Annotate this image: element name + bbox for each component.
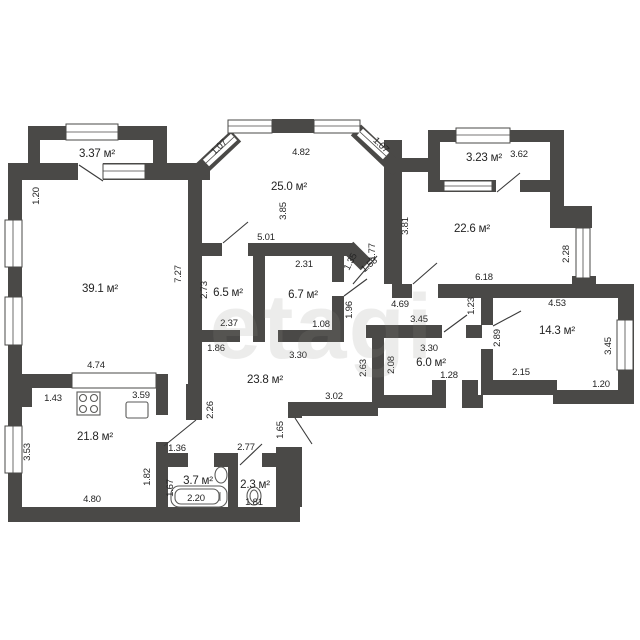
dim-exit-door: 1.65 [275, 421, 286, 439]
window [66, 124, 118, 140]
dim-room3-step: 1.20 [592, 379, 610, 390]
dim-room3-right: 3.45 [603, 337, 614, 355]
wall [276, 447, 302, 507]
wall [384, 158, 440, 172]
dim-kitchen-door: 1.36 [168, 443, 186, 454]
dim-wall-177: 1.77 [367, 243, 378, 261]
dim-walkin1-left: 2.73 [199, 281, 210, 299]
dim-kitchen-left: 3.53 [22, 443, 33, 461]
dim-room2-left: 3.81 [400, 217, 411, 235]
dim-kitchen-bottom: 4.80 [83, 494, 101, 505]
dim-left-top: 1.20 [31, 187, 42, 205]
wall [156, 453, 188, 467]
wall [214, 453, 238, 467]
floor-plan-page: 39.1 м² 21.8 м² 23.8 м² 25.0 м² 22.6 м² … [0, 0, 640, 640]
pass-through [72, 373, 156, 388]
floor-plan: 39.1 м² 21.8 м² 23.8 м² 25.0 м² 22.6 м² … [0, 0, 640, 640]
wall [156, 374, 168, 415]
room-label-room2: 22.6 м² [454, 223, 490, 235]
wall [550, 206, 592, 228]
window [5, 426, 22, 473]
door-swing [223, 222, 248, 243]
opening [446, 378, 462, 410]
wall [228, 467, 238, 507]
window [314, 120, 360, 133]
wall [272, 119, 314, 133]
room-label-living: 39.1 м² [82, 283, 118, 295]
dim-room2-bottom: 6.18 [475, 272, 493, 283]
sink-icon [215, 467, 227, 483]
wall [481, 284, 493, 325]
dim-wc-inner: 1.81 [245, 497, 263, 508]
dim-room3-top: 4.53 [548, 298, 566, 309]
room-label-bathroom: 3.7 м² [183, 475, 213, 487]
dim-room2-right: 2.28 [561, 245, 572, 263]
dim-living-right: 7.27 [173, 265, 184, 283]
dim-bath-inner: 1.67 [165, 479, 176, 497]
dim-room3-bottom: 2.15 [512, 367, 530, 378]
room-label-balcony-right: 3.23 м² [466, 152, 502, 164]
wall [372, 395, 483, 408]
wall [188, 163, 202, 388]
opening [288, 418, 302, 447]
dim-bathtub: 2.20 [187, 493, 205, 504]
dim-room1-depth: 3.85 [278, 202, 289, 220]
wall [28, 126, 40, 165]
dim-lobby-wall: 2.26 [205, 401, 216, 419]
wall [153, 126, 167, 168]
room-label-room3: 14.3 м² [539, 325, 575, 337]
window [228, 120, 272, 133]
window [456, 128, 510, 143]
dim-wall-123: 1.23 [466, 297, 477, 315]
opening [222, 243, 248, 256]
window [444, 181, 492, 191]
dim-living-bottom: 4.74 [87, 360, 105, 371]
window [576, 228, 590, 278]
window [103, 164, 145, 179]
wall [288, 402, 378, 416]
dim-bath-outer: 1.82 [142, 468, 153, 486]
room-label-balcony-left: 3.37 м² [79, 148, 115, 160]
dim-balcony-right-len: 3.62 [510, 149, 528, 160]
window [617, 320, 633, 370]
wall [550, 130, 564, 218]
dim-room1-bottom: 5.01 [257, 232, 275, 243]
stove-icon [77, 392, 100, 415]
dim-wc-top: 2.77 [237, 442, 255, 453]
dim-entry-door: 1.28 [440, 370, 458, 381]
dim-walkin2-top: 2.31 [295, 259, 313, 270]
dim-room3-left: 2.89 [492, 329, 503, 347]
window [5, 220, 22, 267]
wall [8, 507, 300, 522]
wall [481, 380, 557, 395]
opening [78, 163, 103, 180]
door-swing [493, 311, 521, 326]
room-label-kitchen: 21.8 м² [77, 431, 113, 443]
dim-hall-bottom: 3.02 [325, 391, 343, 402]
dim-bay-top: 4.82 [292, 147, 310, 158]
dim-kitchen-top: 1.43 [44, 393, 62, 404]
window [5, 297, 22, 345]
kitchen-sink-icon [126, 402, 148, 418]
room-label-wc: 2.3 м² [240, 479, 270, 491]
dim-kitchen-sink: 3.59 [132, 390, 150, 401]
room-label-room1: 25.0 м² [271, 181, 307, 193]
wall [186, 384, 202, 420]
door-swing [444, 315, 467, 332]
watermark: etagi [210, 276, 435, 378]
wall [466, 325, 482, 338]
